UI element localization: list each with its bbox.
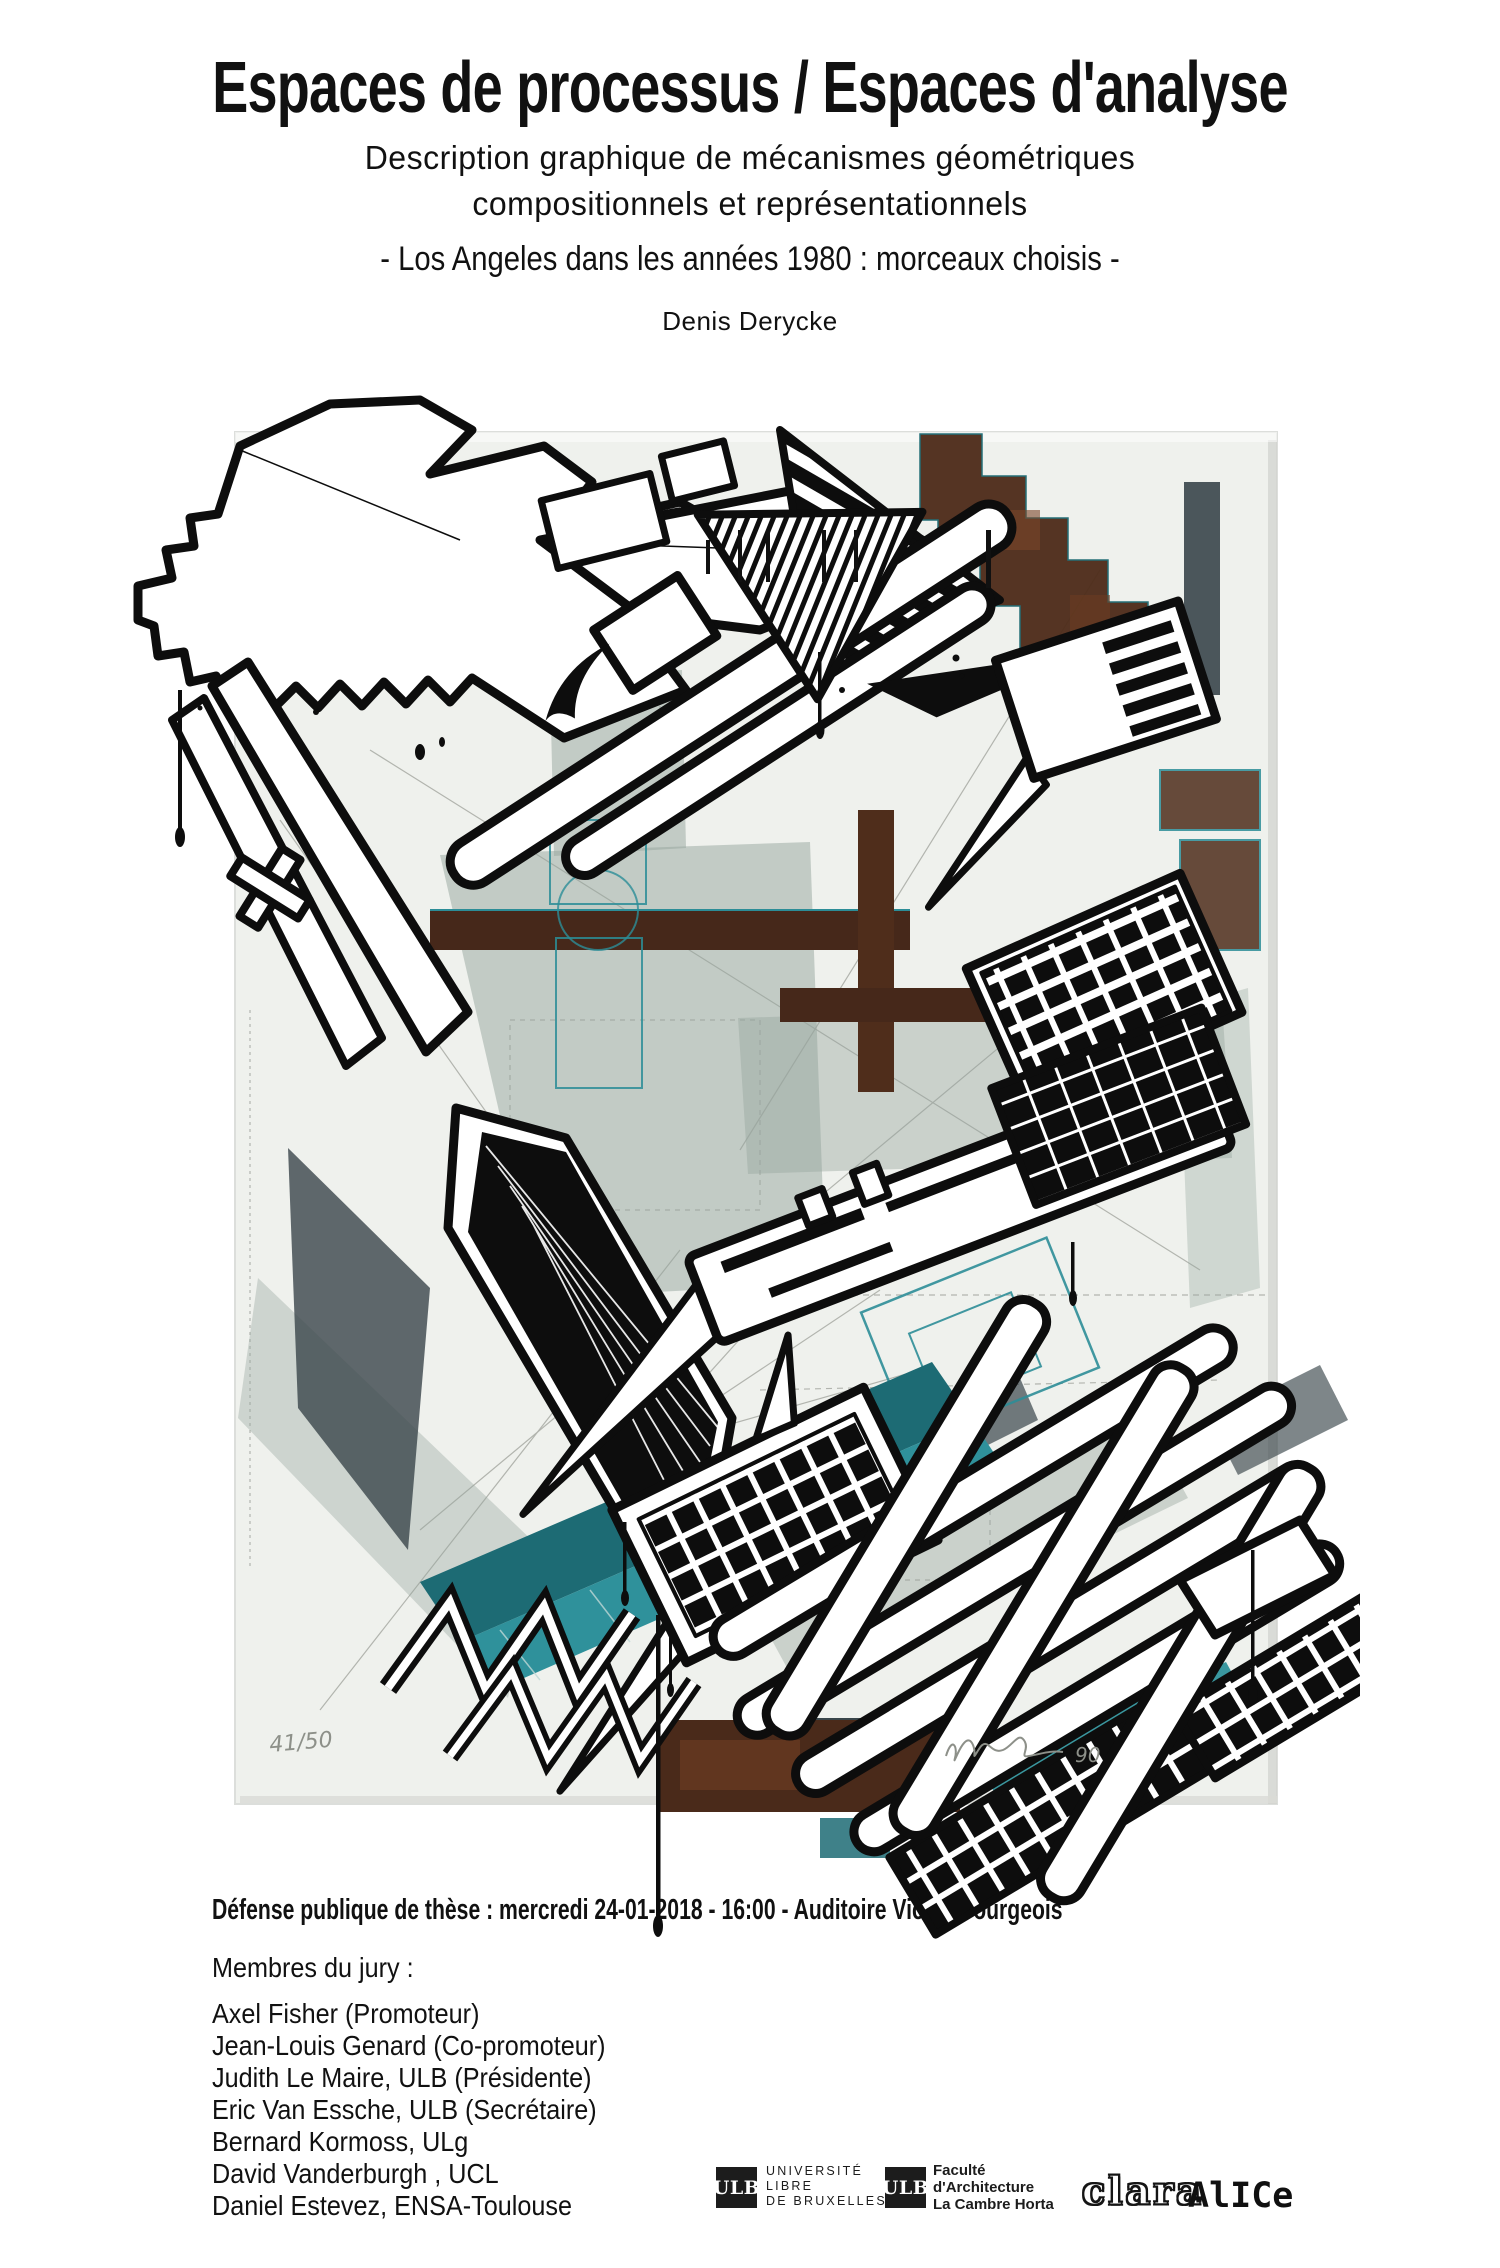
ink-drawing — [138, 390, 1360, 1950]
jury-heading: Membres du jury : — [212, 1952, 414, 1984]
jury-member: Daniel Estevez, ENSA-Toulouse — [212, 2190, 606, 2222]
teal-structures — [420, 820, 1258, 1858]
jury-member: Jean-Louis Genard (Co-promoteur) — [212, 2030, 606, 2062]
poster-title: Espaces de processus / Espaces d'analyse — [188, 52, 1313, 124]
jury-member: Axel Fisher (Promoteur) — [212, 1998, 606, 2030]
poster-subtitle-line2: compositionnels et représentationnels — [23, 184, 1478, 224]
poster-subtitle-line1: Description graphique de mécanismes géom… — [23, 138, 1478, 178]
clara-logo: clara — [1082, 2168, 1204, 2213]
sage-shadow-masses — [238, 482, 1348, 1810]
jury-member: David Vanderburgh , UCL — [212, 2158, 606, 2190]
faculty-name-line3: La Cambre Horta — [933, 2196, 1054, 2213]
faculty-logo: ULB — [885, 2167, 926, 2208]
poster-tagline: - Los Angeles dans les années 1980 : mor… — [105, 240, 1395, 279]
faculty-abbr: ULB — [882, 2177, 930, 2199]
faculty-name-line2: d'Architecture — [933, 2179, 1054, 2196]
faculty-logo-name: Faculté d'Architecture La Cambre Horta — [933, 2162, 1054, 2213]
ulb-abbr: ULB — [713, 2177, 761, 2199]
defense-info-line: Défense publique de thèse : mercredi 24-… — [212, 1894, 1063, 1927]
faculty-name-line1: Faculté — [933, 2162, 1054, 2179]
poster-author: Denis Derycke — [0, 306, 1500, 337]
rust-structures — [430, 434, 1260, 1812]
ulb-logo: ULB — [716, 2167, 757, 2208]
paint-drips — [175, 652, 1258, 1937]
jury-member: Judith Le Maire, ULB (Présidente) — [212, 2062, 606, 2094]
pencil-construction-lines — [250, 510, 1270, 1710]
print-annotations: 41/50 90 — [268, 1728, 1100, 1767]
ulb-name-line2: LIBRE — [766, 2179, 887, 2194]
jury-member: Bernard Kormoss, ULg — [212, 2126, 606, 2158]
ulb-logo-name: UNIVERSITÉ LIBRE DE BRUXELLES — [766, 2164, 887, 2209]
ulb-name-line1: UNIVERSITÉ — [766, 2164, 887, 2179]
edition-mark: 41/50 — [268, 1728, 333, 1758]
ulb-name-line3: DE BRUXELLES — [766, 2194, 887, 2209]
artwork-print: 41/50 90 — [120, 390, 1360, 1950]
artist-signature — [946, 1738, 1063, 1761]
year-mark: 90 — [1075, 1743, 1100, 1767]
paper-sheet — [235, 432, 1277, 1804]
alice-logo: AlICe — [1188, 2176, 1293, 2216]
ulb-logo-square: ULB — [716, 2167, 757, 2208]
faculty-logo-square: ULB — [885, 2167, 926, 2208]
jury-member: Eric Van Essche, ULB (Secrétaire) — [212, 2094, 606, 2126]
thesis-poster: Espaces de processus / Espaces d'analyse… — [0, 0, 1500, 2268]
jury-list: Axel Fisher (Promoteur) Jean-Louis Genar… — [212, 1998, 606, 2222]
